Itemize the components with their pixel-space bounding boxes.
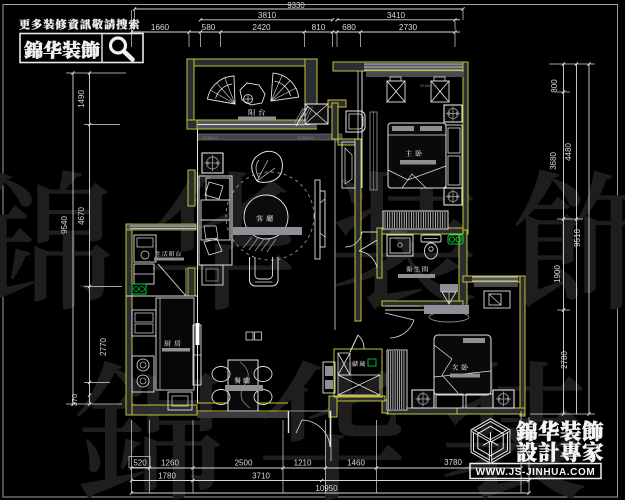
- svg-text:3680: 3680: [549, 152, 558, 170]
- svg-text:4480: 4480: [564, 143, 573, 161]
- svg-text:38.88±0.00: 38.88±0.00: [390, 230, 407, 234]
- svg-text:2500: 2500: [235, 459, 253, 468]
- svg-text:370: 370: [70, 394, 79, 407]
- svg-text:1460: 1460: [347, 459, 365, 468]
- svg-text:580: 580: [202, 23, 216, 32]
- svg-text:3780: 3780: [444, 458, 462, 467]
- svg-text:38.88±0.00: 38.88±0.00: [420, 84, 437, 88]
- svg-text:680: 680: [342, 23, 356, 32]
- svg-text:1900: 1900: [553, 265, 562, 283]
- svg-text:WWW.JS-JINHUA.COM: WWW.JS-JINHUA.COM: [476, 467, 596, 478]
- svg-text:3710: 3710: [252, 471, 270, 480]
- svg-text:1210: 1210: [294, 459, 312, 468]
- svg-text:1780: 1780: [158, 471, 176, 480]
- svg-text:2770: 2770: [99, 338, 108, 356]
- svg-text:2420: 2420: [252, 23, 271, 32]
- svg-text:38.88±0.00: 38.88±0.00: [297, 136, 314, 140]
- svg-text:4670: 4670: [77, 207, 86, 225]
- svg-text:3410: 3410: [387, 11, 406, 20]
- svg-text:810: 810: [312, 23, 326, 32]
- svg-text:1660: 1660: [151, 23, 170, 32]
- svg-text:9510: 9510: [573, 229, 582, 247]
- svg-text:800: 800: [550, 79, 559, 93]
- svg-text:38.88±0.00: 38.88±0.00: [336, 140, 353, 144]
- svg-text:520: 520: [133, 459, 147, 468]
- svg-text:38.88±0.00: 38.88±0.00: [202, 136, 219, 140]
- svg-text:1260: 1260: [161, 459, 179, 468]
- svg-text:1490: 1490: [77, 90, 86, 108]
- svg-text:2780: 2780: [560, 351, 569, 369]
- svg-text:9330: 9330: [287, 1, 305, 10]
- svg-text:2730: 2730: [399, 23, 418, 32]
- svg-text:9540: 9540: [60, 216, 69, 234]
- svg-text:3810: 3810: [258, 11, 277, 20]
- svg-text:10950: 10950: [315, 484, 338, 493]
